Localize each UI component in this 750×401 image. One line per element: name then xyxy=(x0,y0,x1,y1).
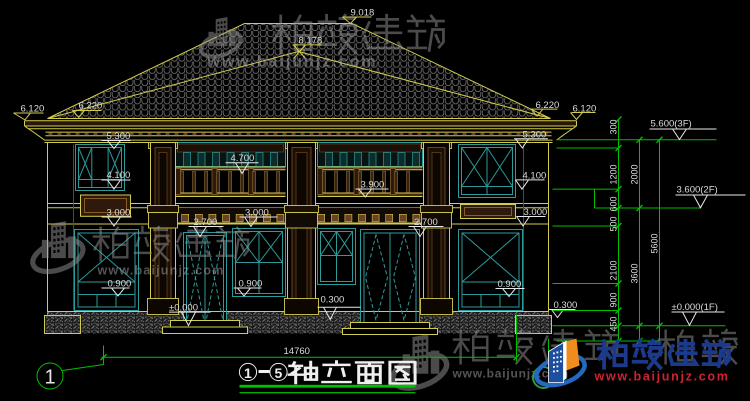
svg-text:6.220: 6.220 xyxy=(536,100,560,111)
svg-text:1: 1 xyxy=(45,367,56,389)
svg-text:600: 600 xyxy=(609,196,619,211)
svg-text:0.300: 0.300 xyxy=(554,300,578,311)
svg-text:2.700: 2.700 xyxy=(194,217,218,228)
svg-text:6.120: 6.120 xyxy=(21,104,45,115)
svg-text:3.900: 3.900 xyxy=(361,180,385,191)
svg-text:900: 900 xyxy=(609,292,619,307)
svg-text:2000: 2000 xyxy=(630,164,640,184)
svg-text:4.700: 4.700 xyxy=(231,153,255,164)
svg-text:2.700: 2.700 xyxy=(414,217,438,228)
svg-text:8.178: 8.178 xyxy=(299,36,323,47)
svg-text:±0.000: ±0.000 xyxy=(169,303,198,314)
svg-text:5.300: 5.300 xyxy=(523,130,547,141)
svg-text:3.000: 3.000 xyxy=(107,208,131,219)
svg-text:0.900: 0.900 xyxy=(108,279,132,290)
svg-text:0.900: 0.900 xyxy=(239,279,263,290)
svg-text:www.baijunjz.com: www.baijunjz.com xyxy=(97,264,225,278)
svg-text:300: 300 xyxy=(609,119,619,134)
svg-text:500: 500 xyxy=(609,216,619,231)
svg-text:www.baijunjz.com: www.baijunjz.com xyxy=(207,54,378,71)
svg-text:2100: 2100 xyxy=(609,260,619,280)
svg-text:3.000: 3.000 xyxy=(245,208,269,219)
svg-text:3.000: 3.000 xyxy=(524,207,548,218)
svg-text:9.018: 9.018 xyxy=(351,8,375,19)
svg-text:5600: 5600 xyxy=(650,233,660,253)
svg-text:1200: 1200 xyxy=(609,164,619,184)
svg-text:4.100: 4.100 xyxy=(523,171,547,182)
svg-text:www.baijunjz.com: www.baijunjz.com xyxy=(594,370,730,384)
svg-text:6.220: 6.220 xyxy=(79,101,103,112)
svg-text:4.100: 4.100 xyxy=(107,170,131,181)
svg-text:450: 450 xyxy=(609,316,619,331)
svg-text:5.300: 5.300 xyxy=(107,131,131,142)
svg-text:0.300: 0.300 xyxy=(321,295,345,306)
svg-text:5.600(3F): 5.600(3F) xyxy=(651,119,692,130)
svg-text:6.120: 6.120 xyxy=(573,104,597,115)
svg-text:14760: 14760 xyxy=(284,346,310,357)
svg-text:5: 5 xyxy=(275,365,283,381)
svg-text:1: 1 xyxy=(244,365,252,381)
svg-text:0.900: 0.900 xyxy=(498,279,522,290)
svg-text:3.600(2F): 3.600(2F) xyxy=(677,185,718,196)
svg-text:3600: 3600 xyxy=(630,263,640,283)
svg-text:±0.000(1F): ±0.000(1F) xyxy=(672,302,718,313)
